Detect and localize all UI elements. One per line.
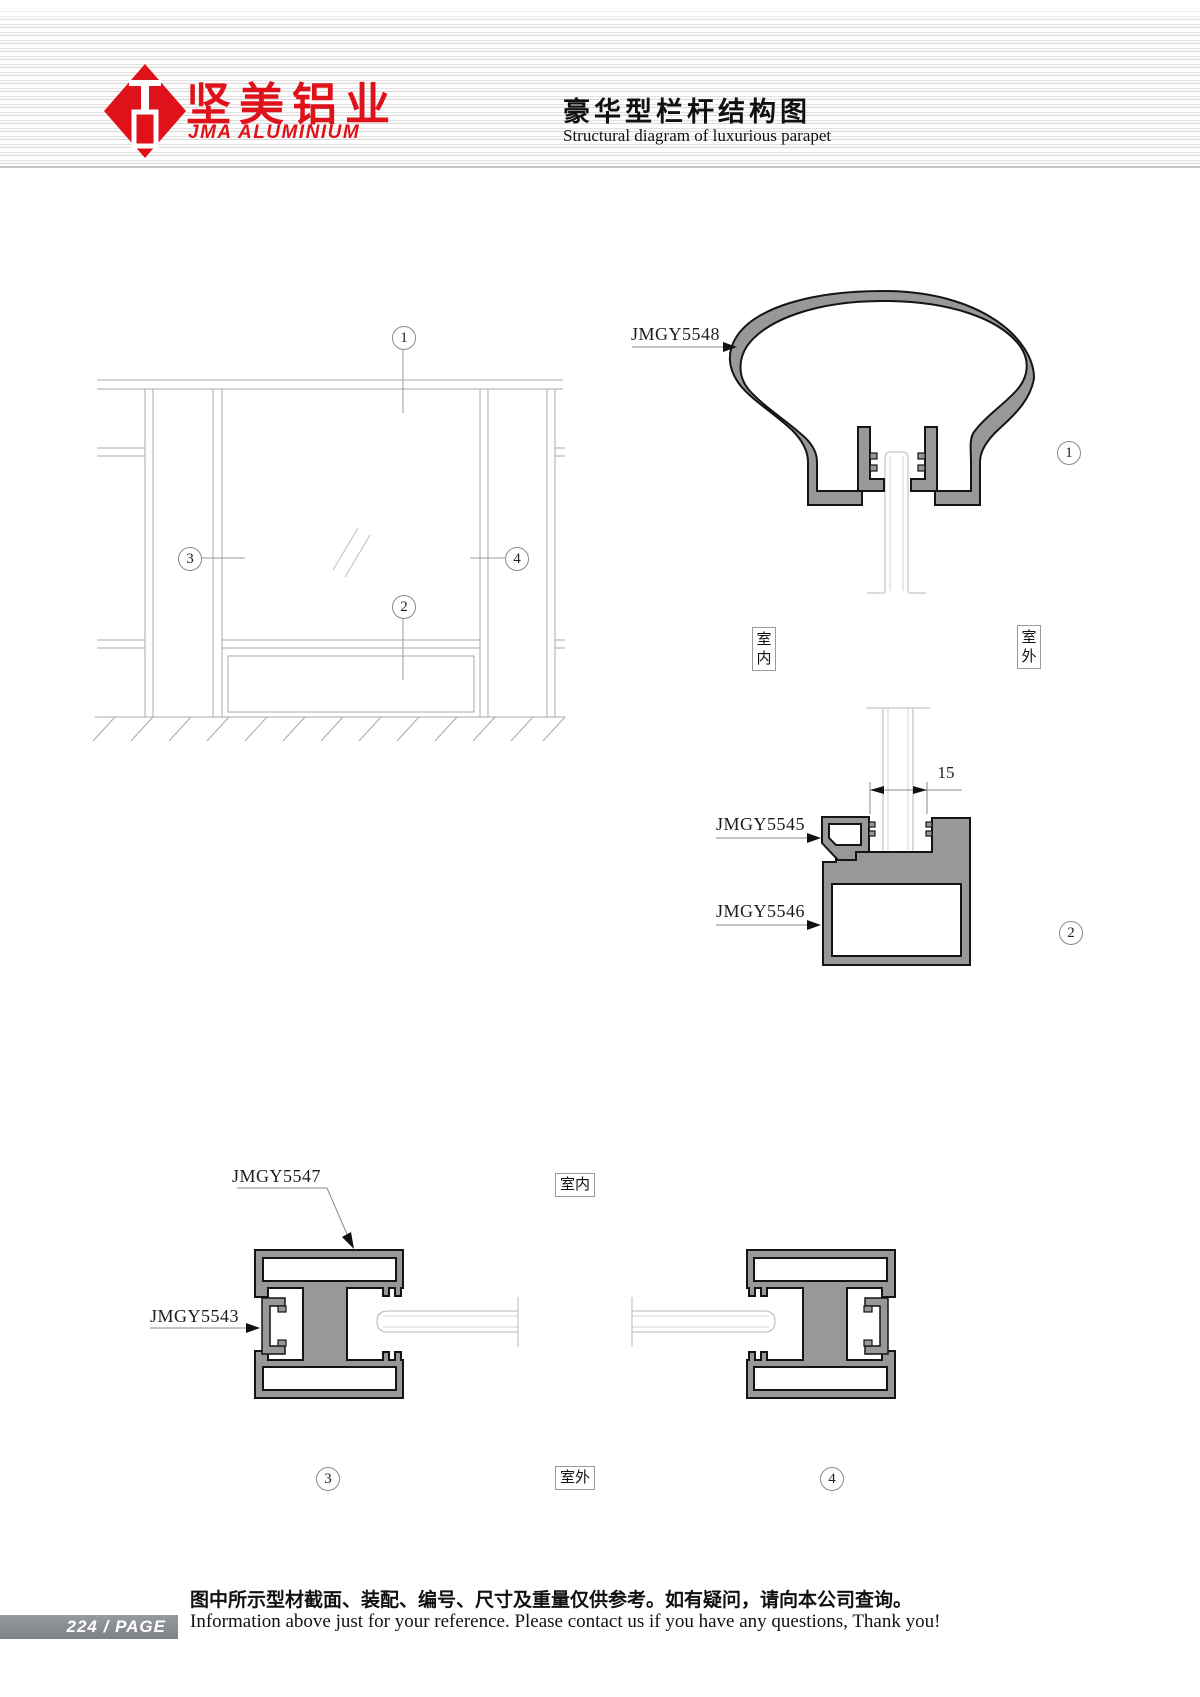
page-label: PAGE xyxy=(115,1617,166,1636)
indoor-label-lower: 室内 xyxy=(555,1173,595,1197)
handrail-profile xyxy=(730,291,1034,505)
callout-1-section: 1 xyxy=(1057,441,1081,465)
outdoor-label-lower: 室外 xyxy=(555,1466,595,1490)
page-number-badge: 224 / PAGE xyxy=(0,1615,178,1639)
callout-4-elevation: 4 xyxy=(505,547,529,571)
profile-label-jmgy5548: JMGY5548 xyxy=(631,324,720,345)
profile-label-jmgy5543: JMGY5543 xyxy=(150,1306,239,1327)
profile-label-jmgy5547: JMGY5547 xyxy=(232,1166,321,1187)
page-number: 224 xyxy=(67,1617,98,1636)
callout-4-section: 4 xyxy=(820,1467,844,1491)
disclaimer-english: Information above just for your referenc… xyxy=(190,1611,940,1633)
callout-1-elevation: 1 xyxy=(392,326,416,350)
label-leader-5547 xyxy=(237,1188,354,1249)
disclaimer-chinese: 图中所示型材截面、装配、编号、尺寸及重量仅供参考。如有疑问，请向本公司查询。 xyxy=(190,1585,912,1612)
page-number-separator: / xyxy=(104,1617,110,1636)
post-section-left xyxy=(150,1188,518,1398)
glass-pane xyxy=(377,1311,518,1332)
ground-hatching xyxy=(93,717,565,741)
elevation-drawing xyxy=(93,348,565,741)
callout-2-section: 2 xyxy=(1059,921,1083,945)
post-section-right xyxy=(632,1250,895,1398)
callout-3-section: 3 xyxy=(316,1467,340,1491)
bottom-rail-section xyxy=(716,708,970,965)
callout-3-elevation: 3 xyxy=(178,547,202,571)
dimension-15-text: 15 xyxy=(926,763,966,783)
glass-pane xyxy=(632,1311,775,1332)
callout-2-elevation: 2 xyxy=(392,595,416,619)
outdoor-label-upper: 室外 xyxy=(1017,625,1041,669)
indoor-label-upper: 室内 xyxy=(752,627,776,671)
glass-symbol xyxy=(333,528,370,577)
callout-leaders xyxy=(200,348,505,680)
catalog-page: 坚美铝业 JMA ALUMINIUM 豪华型栏杆结构图 Structural d… xyxy=(0,0,1200,1697)
profile-label-jmgy5546: JMGY5546 xyxy=(716,901,805,922)
glass-pane xyxy=(885,452,908,593)
profile-label-jmgy5545: JMGY5545 xyxy=(716,814,805,835)
technical-drawing xyxy=(0,0,1200,1697)
